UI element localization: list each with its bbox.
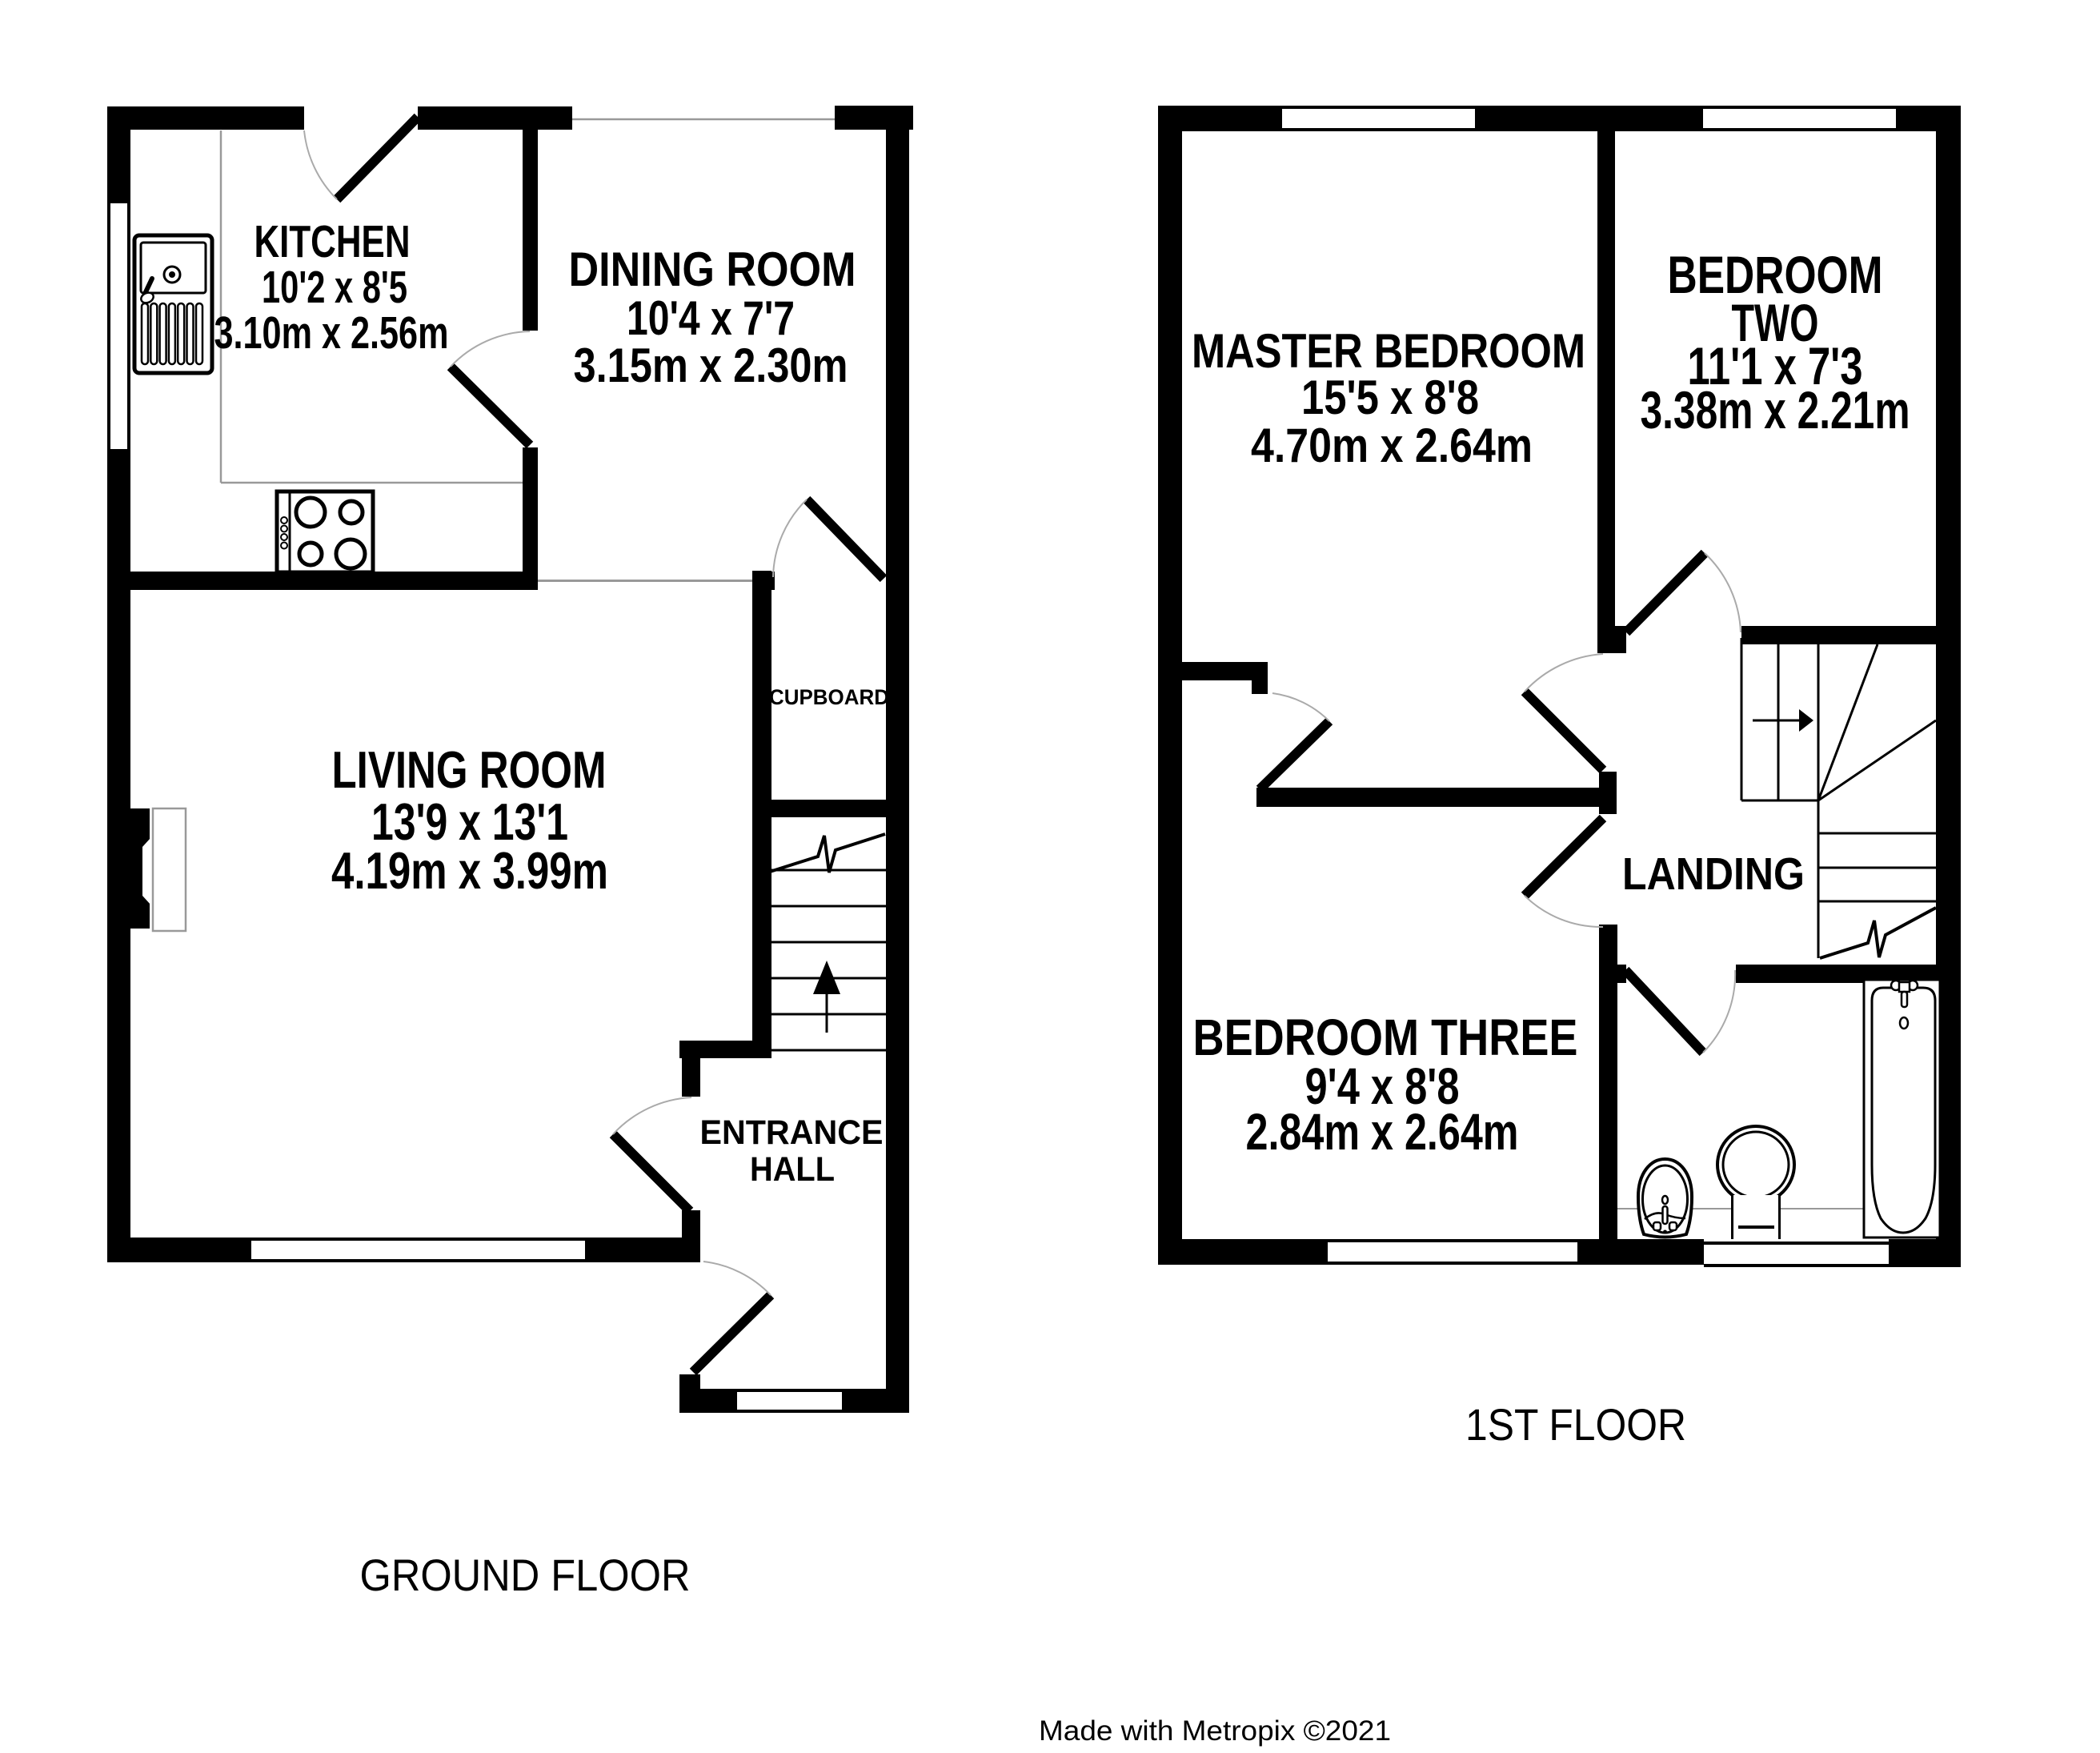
svg-text:ENTRANCE: ENTRANCE xyxy=(700,1113,884,1152)
svg-text:LANDING: LANDING xyxy=(1622,848,1805,900)
svg-text:DINING ROOM: DINING ROOM xyxy=(569,243,856,296)
svg-text:4.19m x 3.99m: 4.19m x 3.99m xyxy=(331,841,608,900)
svg-text:CUPBOARD: CUPBOARD xyxy=(769,685,889,709)
svg-text:10'2 x 8'5: 10'2 x 8'5 xyxy=(262,262,407,313)
svg-text:HALL: HALL xyxy=(750,1150,835,1189)
svg-text:LIVING ROOM: LIVING ROOM xyxy=(332,740,607,799)
svg-text:15'5 x 8'8: 15'5 x 8'8 xyxy=(1301,371,1479,424)
svg-text:MASTER BEDROOM: MASTER BEDROOM xyxy=(1192,324,1585,378)
svg-text:2.84m x 2.64m: 2.84m x 2.64m xyxy=(1246,1103,1519,1161)
svg-text:1ST FLOOR: 1ST FLOOR xyxy=(1465,1399,1686,1450)
svg-text:4.70m x 2.64m: 4.70m x 2.64m xyxy=(1251,419,1533,472)
svg-text:3.10m x 2.56m: 3.10m x 2.56m xyxy=(214,307,449,359)
svg-text:10'4 x 7'7: 10'4 x 7'7 xyxy=(627,291,795,345)
svg-text:3.38m x 2.21m: 3.38m x 2.21m xyxy=(1641,380,1910,439)
svg-text:KITCHEN: KITCHEN xyxy=(254,216,411,267)
svg-text:GROUND FLOOR: GROUND FLOOR xyxy=(360,1550,691,1600)
svg-text:Made with Metropix ©2021: Made with Metropix ©2021 xyxy=(1039,1715,1391,1747)
svg-text:3.15m x 2.30m: 3.15m x 2.30m xyxy=(574,339,848,392)
